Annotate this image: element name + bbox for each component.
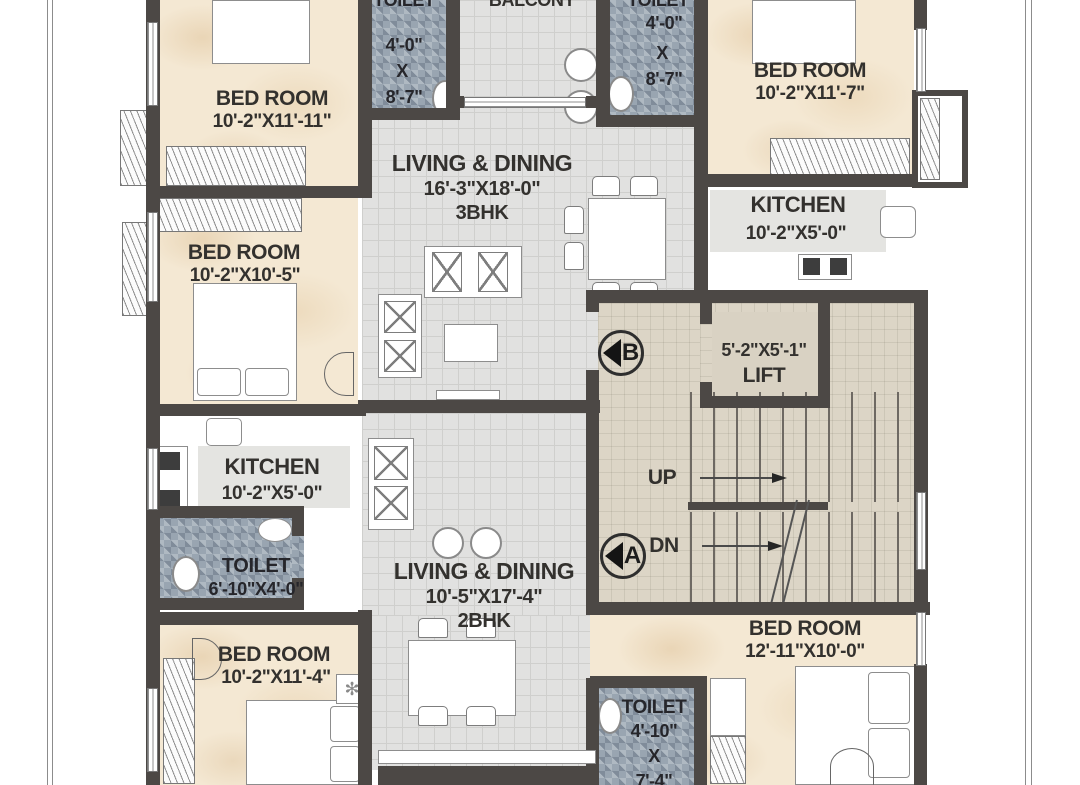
room-label: BALCONY bbox=[489, 0, 575, 9]
room-dims: 10'-2"X11'-7" bbox=[755, 84, 865, 103]
frame-line-right-outer bbox=[1031, 0, 1032, 785]
room-dims: 10'-2"X10'-5" bbox=[190, 266, 301, 285]
wc-icon bbox=[598, 698, 622, 734]
room-dims: 16'-3"X18'-0" bbox=[424, 179, 541, 199]
stairs-up-label: UP bbox=[648, 467, 676, 488]
room-dims: 4'-0" bbox=[646, 14, 683, 32]
room-label: LIVING & DINING bbox=[394, 560, 575, 583]
sofa-cushion bbox=[374, 486, 408, 520]
room-dims: 8'-7" bbox=[386, 88, 423, 106]
dining-chair bbox=[564, 242, 584, 270]
door-arc bbox=[830, 748, 874, 785]
wall bbox=[590, 290, 928, 303]
wall bbox=[378, 766, 596, 785]
room-dims: X bbox=[656, 44, 668, 62]
floor-plan: ✻ bbox=[0, 0, 1080, 785]
wall bbox=[596, 115, 708, 127]
wall-lift-right bbox=[818, 303, 830, 408]
room-label: BED ROOM bbox=[216, 88, 328, 109]
room-dims: 8'-7" bbox=[646, 70, 683, 88]
sofa-cushion bbox=[478, 252, 508, 292]
wardrobe-top-right bbox=[770, 138, 910, 176]
wash-basin-icon bbox=[470, 527, 502, 559]
marker-letter: B bbox=[622, 339, 639, 367]
wall bbox=[150, 404, 366, 416]
room-label: BED ROOM bbox=[218, 644, 330, 665]
wardrobe-top-left bbox=[166, 146, 306, 186]
room-dims: 4'-0" bbox=[386, 36, 423, 54]
marker-letter: A bbox=[624, 542, 641, 570]
wall bbox=[694, 676, 707, 785]
pillow bbox=[197, 368, 241, 396]
room-dims: 12'-11"X10'-0" bbox=[745, 642, 865, 661]
wc-icon bbox=[172, 556, 200, 592]
pillow bbox=[330, 706, 360, 742]
burner-icon bbox=[803, 258, 820, 275]
cabinet-bottom-right bbox=[710, 678, 746, 736]
kitchen-sink-right bbox=[880, 206, 916, 238]
room-dims: X bbox=[396, 62, 408, 80]
marker-triangle-icon bbox=[603, 339, 621, 367]
room-dims: 5'-2"X5'-1" bbox=[721, 341, 806, 359]
wall bbox=[358, 108, 460, 120]
burner-icon bbox=[830, 258, 847, 275]
pillow bbox=[330, 746, 360, 782]
wardrobe-bottom-left bbox=[163, 658, 195, 784]
pillow bbox=[868, 672, 910, 724]
sofa-cushion bbox=[384, 301, 416, 333]
room-label: LIFT bbox=[743, 365, 786, 386]
wc-icon bbox=[608, 76, 634, 112]
window bbox=[147, 212, 158, 302]
room-dims: 10'-2"X11'-11" bbox=[213, 112, 332, 131]
dining-chair bbox=[630, 176, 658, 196]
room-label: TOILET bbox=[622, 698, 687, 717]
kitchen-sink-left bbox=[206, 418, 242, 446]
wall bbox=[694, 0, 708, 302]
wash-basin-icon bbox=[564, 48, 598, 82]
room-label: BED ROOM bbox=[754, 60, 866, 81]
room-dims: 6'-10"X4'-0" bbox=[209, 580, 304, 598]
room-label: BED ROOM bbox=[749, 618, 861, 639]
room-label: BED ROOM bbox=[188, 242, 300, 263]
marker-triangle-icon bbox=[605, 542, 623, 570]
window bbox=[147, 448, 158, 510]
dining-table-3bhk bbox=[588, 198, 666, 280]
bed-top-right bbox=[752, 0, 856, 64]
pillow bbox=[245, 368, 289, 396]
wall bbox=[590, 676, 707, 688]
room-label: TOILET bbox=[627, 0, 688, 9]
window bbox=[916, 612, 926, 666]
stair-treads-upper bbox=[690, 392, 916, 502]
wall bbox=[914, 664, 927, 785]
down-arrow-head bbox=[768, 541, 783, 551]
wall bbox=[358, 0, 372, 198]
window bbox=[147, 688, 158, 772]
toilet-door-gap bbox=[292, 536, 304, 578]
window bbox=[916, 492, 926, 570]
up-arrow-line bbox=[700, 477, 772, 479]
room-label: TOILET bbox=[373, 0, 434, 9]
room-dims: 10'-2"X5'-0" bbox=[222, 484, 322, 503]
frame-line-right-inner bbox=[1025, 0, 1026, 785]
sofa-cushion bbox=[432, 252, 462, 292]
bed-top-left bbox=[212, 0, 310, 64]
room-label: KITCHEN bbox=[225, 456, 320, 478]
wall bbox=[446, 0, 460, 108]
frame-line-left-inner bbox=[52, 0, 53, 785]
wall bbox=[914, 0, 927, 30]
balcony-door-window bbox=[464, 97, 586, 108]
closet-hatch bbox=[920, 98, 940, 180]
wall bbox=[150, 506, 304, 518]
room-dims: 10'-5"X17'-4" bbox=[426, 587, 543, 607]
flat-marker-b: B bbox=[598, 330, 644, 376]
wardrobe-bottom-right bbox=[710, 736, 746, 784]
dining-chair bbox=[418, 706, 448, 726]
wall bbox=[358, 610, 372, 785]
wall bbox=[150, 612, 372, 625]
basin-icon bbox=[258, 518, 292, 542]
stairs-down-label: DN bbox=[649, 535, 679, 556]
wall bbox=[590, 602, 930, 615]
dining-chair bbox=[592, 176, 620, 196]
wall bbox=[586, 96, 610, 108]
dining-chair bbox=[466, 706, 496, 726]
tv-console bbox=[436, 390, 500, 400]
wardrobe-mid-left bbox=[158, 198, 302, 232]
wall bbox=[358, 400, 600, 413]
window bbox=[147, 22, 158, 106]
room-dims: 7'-4" bbox=[636, 772, 673, 785]
room-unit: 2BHK bbox=[458, 611, 511, 631]
sofa-cushion bbox=[384, 340, 416, 372]
room-unit: 3BHK bbox=[456, 203, 509, 223]
room-dims: 10'-2"X11'-4" bbox=[221, 668, 331, 687]
room-dims: 4'-10" bbox=[631, 722, 677, 740]
window bbox=[916, 28, 926, 92]
wardrobe-niche-left-1 bbox=[120, 110, 148, 186]
dining-chair bbox=[564, 206, 584, 234]
window-sill-bottom bbox=[378, 750, 596, 764]
room-label: KITCHEN bbox=[751, 194, 846, 216]
wall-lift-bottom bbox=[700, 396, 830, 408]
room-dims: X bbox=[648, 747, 660, 765]
burner-icon bbox=[158, 452, 180, 470]
down-arrow-line bbox=[702, 545, 768, 547]
coffee-table bbox=[444, 324, 498, 362]
dining-chair bbox=[418, 618, 448, 638]
lift-door-gap bbox=[700, 324, 712, 382]
wall-exterior-left bbox=[146, 0, 160, 785]
frame-line-left-outer bbox=[47, 0, 48, 785]
wash-basin-icon bbox=[432, 527, 464, 559]
room-label: LIVING & DINING bbox=[392, 152, 573, 175]
room-label: TOILET bbox=[222, 556, 290, 576]
wall bbox=[150, 598, 304, 610]
pillow bbox=[868, 728, 910, 778]
up-arrow-head bbox=[772, 473, 787, 483]
flat-marker-a: A bbox=[600, 533, 646, 579]
wall bbox=[150, 186, 372, 198]
room-dims: 10'-2"X5'-0" bbox=[746, 224, 846, 243]
sofa-cushion bbox=[374, 446, 408, 480]
wall bbox=[446, 96, 464, 108]
dining-table-2bhk bbox=[408, 640, 516, 716]
wall bbox=[702, 174, 928, 187]
